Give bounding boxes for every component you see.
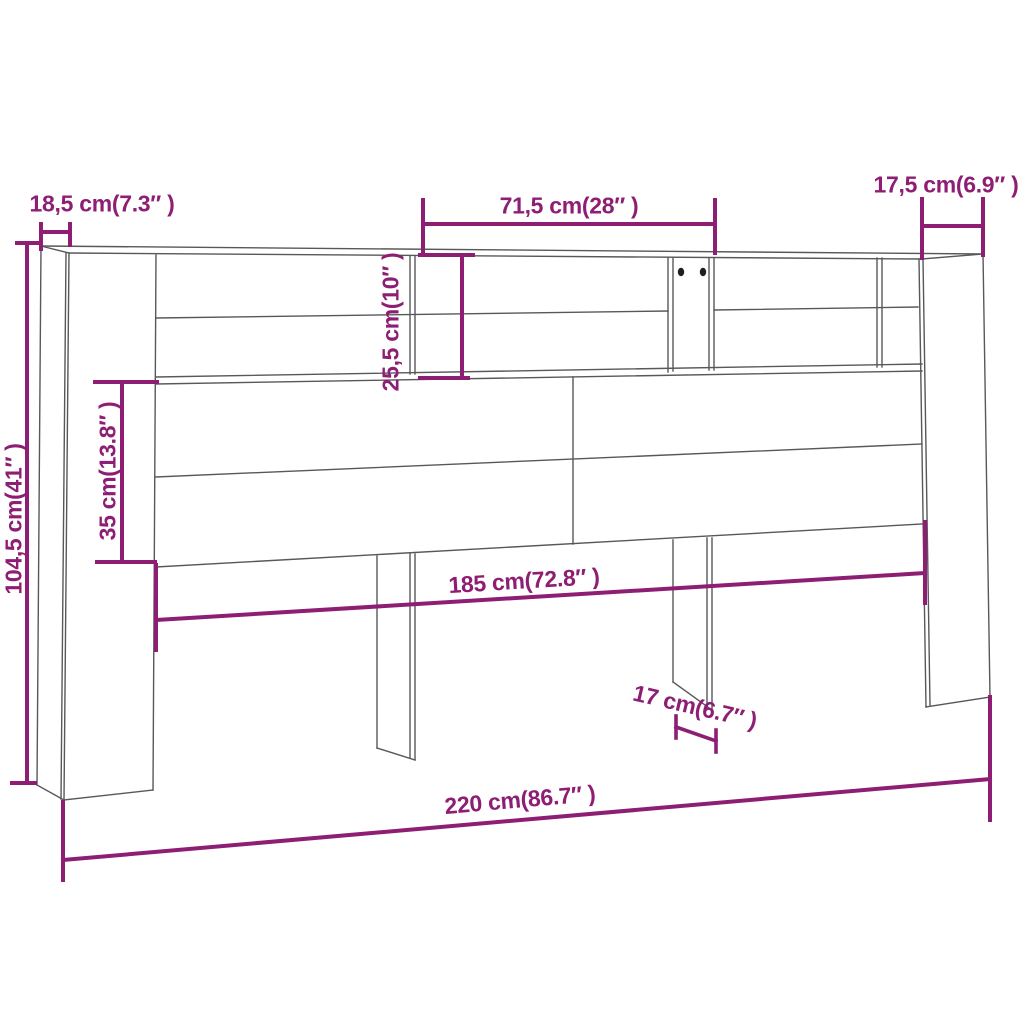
diagram-canvas: 18,5 cm(7.3″ ) 71,5 cm(28″ ) 17,5 cm(6.9… <box>0 0 1024 1024</box>
panel-mid-groove <box>156 444 922 477</box>
top-outer-edge <box>41 246 983 254</box>
label-side-depth-left: 18,5 cm(7.3″ ) <box>30 191 175 218</box>
right-side-bottom <box>926 697 990 707</box>
top-left-corner <box>41 246 69 253</box>
door-handle-dots <box>678 268 706 276</box>
top-front-edge <box>69 253 922 259</box>
shelf-bottom-b <box>156 371 922 384</box>
handle-dot-right <box>700 268 706 276</box>
left-side-bottom <box>37 785 64 800</box>
shelf-mid-line-right <box>714 307 918 310</box>
panel-bottom-edge <box>156 524 922 567</box>
label-top-section-width: 71,5 cm(28″ ) <box>500 193 639 220</box>
label-compartment-height: 25,5 cm(10″ ) <box>378 253 405 392</box>
label-total-height: 104,5 cm(41″ ) <box>1 443 28 594</box>
right-front-edge-b <box>923 259 930 705</box>
dim-side-depth-left <box>41 224 70 249</box>
dim-side-depth-right <box>922 199 983 258</box>
right-outer-edge <box>983 254 990 697</box>
handle-dot-left <box>678 268 684 276</box>
furniture-outline <box>37 246 990 800</box>
dimension-lines <box>12 199 990 880</box>
right-front-edge-a <box>919 259 926 707</box>
label-side-depth-right: 17,5 cm(6.9″ ) <box>874 172 1019 199</box>
left-column-right-edge <box>153 255 156 790</box>
headboard-dimension-diagram <box>0 0 1024 1024</box>
label-panel-height: 35 cm(13.8″ ) <box>95 402 122 541</box>
left-column-bottom <box>64 790 153 800</box>
top-right-corner <box>922 254 983 259</box>
shelf-mid-line-left <box>156 311 668 318</box>
shelf-bottom-a <box>156 364 922 377</box>
dim-compartment-height <box>420 255 473 378</box>
left-outer-edge <box>37 246 41 785</box>
